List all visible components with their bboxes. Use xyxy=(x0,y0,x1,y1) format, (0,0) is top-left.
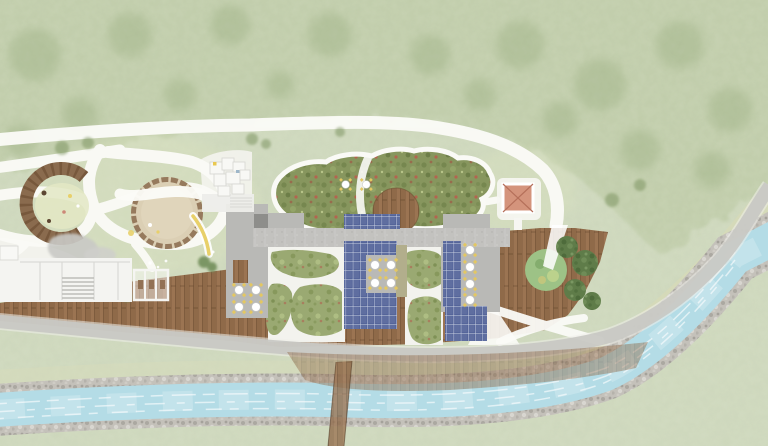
bush xyxy=(246,133,258,145)
tree-blob xyxy=(694,152,730,188)
tree-blob xyxy=(542,102,578,138)
cube-accent xyxy=(213,162,217,166)
tree-blob xyxy=(308,13,352,57)
tree-blob xyxy=(496,21,544,69)
pergola-fixture xyxy=(160,280,165,289)
speck xyxy=(212,251,215,254)
play-equipment-dot xyxy=(62,210,66,214)
solar-array-east-block xyxy=(445,306,487,341)
pergola-fixture xyxy=(149,280,154,289)
tree-blob xyxy=(108,13,152,57)
tree-blob xyxy=(9,29,61,81)
cube xyxy=(226,172,240,184)
bush xyxy=(634,179,646,191)
play-surface xyxy=(35,183,89,229)
bush xyxy=(261,139,271,149)
tree-blob xyxy=(464,79,496,111)
site-plan-canvas xyxy=(0,0,768,446)
tree-blob xyxy=(574,59,626,111)
bush xyxy=(82,137,94,149)
solar-array-east-strip xyxy=(443,241,461,307)
roof-cube xyxy=(0,246,18,260)
tree-blob xyxy=(410,35,450,75)
cube xyxy=(232,184,244,194)
tree-blob xyxy=(620,130,660,170)
cube xyxy=(214,174,226,186)
pergola-fixture xyxy=(138,280,143,289)
planter-texture xyxy=(547,270,559,282)
gravel-roof-strip xyxy=(396,245,407,297)
tree-blob xyxy=(656,21,704,69)
evergreen-shrub xyxy=(556,236,578,258)
tree-blob xyxy=(164,79,196,111)
lawn-marker-dot xyxy=(128,230,134,236)
rooftop-wood-patch xyxy=(233,260,248,283)
play-equipment-dot xyxy=(68,194,72,198)
pavilion-stem xyxy=(514,218,522,230)
speck xyxy=(148,261,151,264)
cube xyxy=(240,170,250,180)
play-equipment-dot xyxy=(148,223,152,227)
evergreen-shrub xyxy=(564,279,586,301)
cluster-canopy xyxy=(202,194,254,212)
speck xyxy=(165,260,168,263)
tree-blob xyxy=(266,71,294,99)
evergreen-shrub xyxy=(572,250,598,276)
west-wing-upper-roof xyxy=(268,213,304,230)
tree-blob xyxy=(210,5,250,45)
planted-bed xyxy=(408,296,442,344)
bush xyxy=(55,141,69,155)
planted-bed xyxy=(404,250,442,289)
deck-pergola xyxy=(134,270,168,300)
cube-accent xyxy=(236,170,240,173)
planted-bed xyxy=(291,284,342,336)
tree-blob xyxy=(708,88,752,132)
evergreen-shrub xyxy=(583,292,601,310)
building-roof xyxy=(0,258,132,302)
play-equipment-dot xyxy=(156,230,159,233)
bush xyxy=(335,127,345,137)
play-equipment-dot xyxy=(76,204,79,207)
planter-texture xyxy=(538,276,546,284)
bench-icon xyxy=(42,191,47,196)
solar-array-top-strip xyxy=(344,214,400,229)
cube xyxy=(222,158,234,170)
bush xyxy=(207,262,217,272)
speck xyxy=(157,266,160,269)
site-plan-svg xyxy=(0,0,768,446)
cube xyxy=(218,186,230,196)
bench-icon xyxy=(47,219,51,223)
bush xyxy=(605,193,619,207)
